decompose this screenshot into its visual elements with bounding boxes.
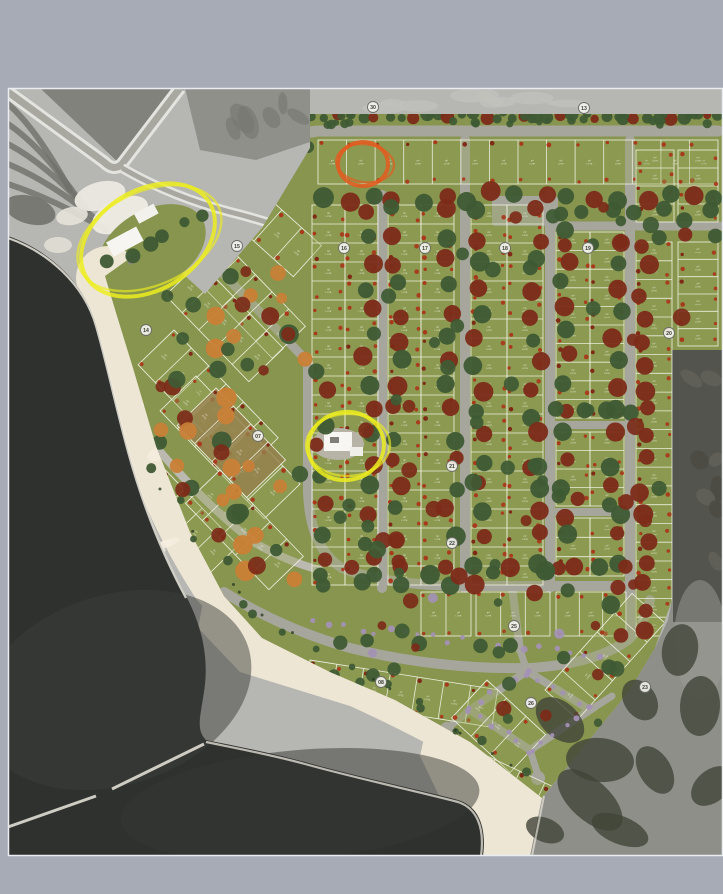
tree [561,583,575,597]
lot-label-area: m² [588,159,591,162]
palm-tree [261,614,264,617]
tree [440,360,455,375]
lot-label-type: LOTE [535,615,541,617]
lot-dot [590,369,594,373]
lot-dot [620,471,624,475]
lot-dot [638,547,642,551]
tree [242,460,254,472]
lot-label-area: m² [403,516,406,519]
lot-label-area: m² [360,402,363,405]
lot-dot [415,348,419,352]
lot-dot [313,214,317,218]
lot-dot [315,350,319,354]
lot-label-area: m² [697,317,700,320]
tree [702,202,718,218]
tree [390,534,405,549]
lot-label-type: LOTE [359,273,365,275]
lot-dot [712,250,716,254]
lot-label-type: LOTE [651,328,657,330]
lot-dot [405,180,409,184]
tree [610,351,628,369]
lot-label-type: LOTE [522,539,528,541]
lot-dot [345,233,350,238]
lot-dot [665,453,669,457]
lot-label-type: LOTE [695,252,701,254]
lot-dot [538,548,542,552]
lot-dot [478,632,482,636]
lot-dot [346,328,350,332]
tree [353,347,372,366]
tree [662,185,680,203]
lot-label-area: m² [653,399,656,402]
lot-label-area: m² [524,364,527,367]
lot-dot [591,550,595,554]
lot-dot [634,141,638,145]
tree [555,646,561,652]
lot-label-area: m² [327,516,330,519]
tree [235,297,251,313]
lot-label-type: LOTE [522,444,528,446]
tree [465,474,482,491]
lot-label-area: m² [360,269,363,272]
lot-label-area: m² [653,530,656,533]
lot-label-type: LOTE [651,253,657,255]
lot-label-area: m² [327,402,330,405]
lot-dot [423,407,427,411]
lot-dot [502,419,506,423]
marker-badge: 07 [253,431,264,442]
tree [673,309,691,327]
lot-label-area: m² [327,269,330,272]
tree [639,514,652,527]
lot-dot [372,443,376,447]
tree [441,276,457,292]
lot-dot [690,143,694,147]
lot-label-type: LOTE [326,482,332,484]
lot-dot [416,420,420,424]
lot-label-type: LOTE [435,539,441,541]
tree [221,343,235,357]
lot-dot [680,253,683,256]
lot-dot [508,282,511,285]
lot-label-area: m² [360,554,363,557]
marker-badge: 14 [141,325,152,336]
tree [478,714,483,719]
lot-label-area: m² [653,380,656,383]
tree [685,186,704,205]
lot-label-type: LOTE [486,520,492,522]
tree [523,382,538,397]
tree [532,352,550,370]
lot-label-type: LOTE [570,443,576,445]
lot-label-type: LOTE [435,273,441,275]
tree [640,533,657,550]
lot-dot [424,521,428,525]
lot-label-type: LOTE [359,501,365,503]
lot-label-area: m² [436,440,439,443]
lot-dot [585,278,588,281]
lot-dot [390,370,393,373]
lot-dot [584,496,589,501]
marker-badge: 20 [664,328,675,339]
lot-label-type: LOTE [486,406,492,408]
lot-dot [501,264,504,267]
tree [610,526,624,540]
lot-label-type: LOTE [402,292,408,294]
lot-label-type: LOTE [486,292,492,294]
lot-label-area: m² [606,313,609,316]
tree [333,119,340,126]
lot-dot [546,143,551,148]
lot-label-type: LOTE [695,214,701,216]
lot-label-area: m² [488,364,491,367]
lot-label-type: LOTE [329,163,335,165]
lot-label-area: m² [403,554,406,557]
tree [420,565,440,585]
lot-dot [315,295,319,299]
tree [556,221,574,239]
lot-dot [637,442,641,446]
tree [637,311,654,328]
lot-label-area: m² [360,250,363,253]
palm-tree [372,678,375,681]
lot-label-area: m² [653,249,656,252]
lot-label-area: m² [653,343,656,346]
tree [703,119,712,128]
lot-dot [422,632,426,636]
tree [381,289,396,304]
marker-badge: 30 [368,102,379,113]
tree [636,357,654,375]
tree [298,352,313,367]
lot-label-area: m² [524,212,527,215]
lot-label-type: LOTE [359,463,365,465]
lot-dot [372,250,377,255]
lot-dot [473,551,478,556]
tree [554,375,571,392]
lot-dot [508,446,512,450]
tree [540,566,554,580]
lot-label-area: m² [566,611,569,614]
marker-number: 13 [581,106,587,112]
tree [474,382,494,402]
lot-dot [556,318,561,323]
tree [247,527,264,544]
lot-dot [679,180,683,184]
lot-label-area: m² [572,388,575,391]
tree [388,500,403,515]
lot-label-area: m² [436,364,439,367]
lot-dot [388,522,392,526]
lot-dot [313,265,317,269]
lot-label-type: LOTE [651,422,657,424]
tree [154,423,169,438]
lot-dot [618,547,623,552]
lot-dot [509,510,512,513]
lot-dot [557,547,561,551]
lot-label-area: m² [697,283,700,286]
lot-label-type: LOTE [435,349,441,351]
lot-label-area: m² [653,474,656,477]
tree [436,375,454,393]
tree [538,740,542,744]
tree [466,201,485,220]
lot-dot [338,347,342,351]
tree [560,690,565,695]
tree [416,698,423,705]
tree [501,461,515,475]
lot-dot [503,233,507,237]
tree [614,235,628,249]
marker-badge: 25 [509,621,520,632]
lot-label-area: m² [606,257,609,260]
marker-number: 21 [449,464,455,470]
tree [640,255,659,274]
tree [196,209,208,221]
tree [556,509,574,527]
lot-label-type: LOTE [522,254,528,256]
tree [652,481,667,496]
lot-label-type: LOTE [326,254,332,256]
tree [493,114,502,123]
marker-number: 14 [143,328,149,334]
lot-dot [668,568,671,571]
marker-badge: 08 [376,677,387,688]
lot-dot [417,562,421,566]
lot-label-type: LOTE [486,216,492,218]
lot-label-area: m² [360,307,363,310]
tree [438,560,453,575]
lot-label-type: LOTE [651,290,657,292]
lot-dot [490,141,495,146]
tree [552,489,566,503]
tree [536,643,542,649]
marker-badge: 16 [339,243,350,254]
tree [261,307,279,325]
lot-dot [585,473,588,476]
lot-label-type: LOTE [529,163,535,165]
lot-dot [584,434,588,438]
tree [526,334,540,348]
marker-number: 17 [422,246,428,252]
lot-dot [580,630,583,633]
terrain-texture [510,92,554,105]
tree [567,116,576,125]
lot-label-area: m² [327,459,330,462]
lot-dot [388,578,393,583]
tree [342,499,355,512]
lot-label-type: LOTE [522,349,528,351]
lot-dot [680,337,685,342]
lot-label-type: LOTE [604,373,610,375]
lot-label-type: LOTE [651,572,657,574]
lot-label-type: LOTE [695,304,701,306]
tree [438,229,457,248]
lot-label-area: m² [474,159,477,162]
lot-dot [423,268,426,271]
tree [216,387,236,407]
tree [436,249,454,267]
tree [473,639,488,654]
marker-number: 19 [585,246,591,252]
lot-label-area: m² [403,250,406,253]
lot-label-type: LOTE [435,482,441,484]
tree [364,254,383,273]
lot-dot [507,366,510,369]
lot-label-area: m² [617,159,620,162]
lot-dot [315,416,319,420]
tree [521,515,532,526]
lot-label-area: m² [403,421,406,424]
tree [470,279,488,297]
lot-dot [501,341,506,346]
lot-label-area: m² [488,478,491,481]
lot-label-type: LOTE [435,463,441,465]
lot-dot [472,401,476,405]
tree [358,204,374,220]
tree [449,117,457,125]
lot-label-type: LOTE [695,339,701,341]
tree [505,185,523,203]
lot-label-type: LOTE [604,548,610,550]
lot-dot [585,567,590,572]
lot-label-type: LOTE [456,615,462,617]
tree [394,568,404,578]
lot-label-area: m² [697,265,700,268]
building-roof [330,437,339,443]
lot-label-type: LOTE [570,280,576,282]
lot-label-area: m² [697,174,700,177]
lot-label-area: m² [436,554,439,557]
tree [161,290,173,302]
lot-label-area: m² [654,174,657,177]
lot-label-area: m² [488,402,491,405]
lot-dot [389,551,393,555]
lot-label-type: LOTE [415,163,421,165]
lot-label-type: LOTE [402,501,408,503]
tree [591,558,609,576]
lot-label-area: m² [531,159,534,162]
lot-label-area: m² [697,300,700,303]
tree [580,115,588,123]
lot-label-type: LOTE [604,261,610,263]
lot-label-area: m² [488,497,491,500]
lot-dot [339,496,344,501]
tree [323,121,331,129]
lot-label-type: LOTE [472,163,478,165]
tree [177,496,185,504]
tree [361,629,367,635]
tree [308,363,324,379]
tree [390,333,409,352]
tree [248,609,257,618]
lot-dot [667,549,671,553]
lot-label-area: m² [653,605,656,608]
tree [360,376,379,395]
lot-label-type: LOTE [522,577,528,579]
lot-dot [422,311,426,315]
tree [514,738,519,743]
marker-number: 15 [234,244,240,250]
lot-label-type: LOTE [558,163,564,165]
lot-label-area: m² [488,326,491,329]
tree [344,560,359,575]
lot-label-area: m² [327,231,330,234]
tree [170,459,184,473]
lot-label-area: m² [331,159,334,162]
lot-label-area: m² [488,288,491,291]
sand-patch [44,237,72,253]
tree [366,188,383,205]
lot-label-type: LOTE [435,216,441,218]
lot-dot [421,212,425,216]
tree [577,701,582,706]
lot-dot [315,257,319,261]
tree [478,699,484,705]
lot-label-type: LOTE [651,590,657,592]
lot-label-type: LOTE [359,311,365,313]
tree [574,715,580,721]
lot-label-area: m² [606,350,609,353]
lot-dot [462,142,467,147]
lot-dot [577,180,580,183]
tree [533,234,549,250]
lot-label-type: LOTE [486,501,492,503]
lot-label-type: LOTE [651,497,657,499]
lot-label-area: m² [487,611,490,614]
lot-dot [423,382,426,385]
lot-label-type: LOTE [522,235,528,237]
terrain-texture [398,100,438,112]
tree [649,116,658,125]
lot-label-type: LOTE [522,501,528,503]
lot-label-area: m² [432,611,435,614]
marker-number: 22 [449,541,455,547]
lot-dot [313,515,316,518]
lot-dot [557,364,561,368]
lot-label-area: m² [403,269,406,272]
lot-label-type: LOTE [695,321,701,323]
lot-label-area: m² [436,402,439,405]
lot-dot [714,322,717,325]
tree [398,114,406,122]
lot-label-type: LOTE [615,163,621,165]
lot-dot [348,514,352,518]
lot-dot [558,293,562,297]
tree [367,327,381,341]
tree [366,400,383,417]
lot-dot [338,307,342,311]
lot-label-type: LOTE [510,615,516,617]
lot-dot [502,286,505,289]
tree [223,459,241,477]
lot-label-area: m² [488,554,491,557]
tree [477,736,487,746]
tree [185,297,201,313]
tree [618,494,634,510]
lot-dot [416,444,420,448]
tree [608,378,627,397]
lot-label-area: m² [524,250,527,253]
tree [527,114,536,123]
tree [506,120,513,127]
palm-tree [238,591,241,594]
tree [634,239,649,254]
tree [248,557,266,575]
lot-strip: m²LOTEm²LOTEm²LOTEm²LOTEm²LOTEm²LOTE [678,242,718,346]
lot-dot [591,280,595,284]
tree [554,629,564,639]
